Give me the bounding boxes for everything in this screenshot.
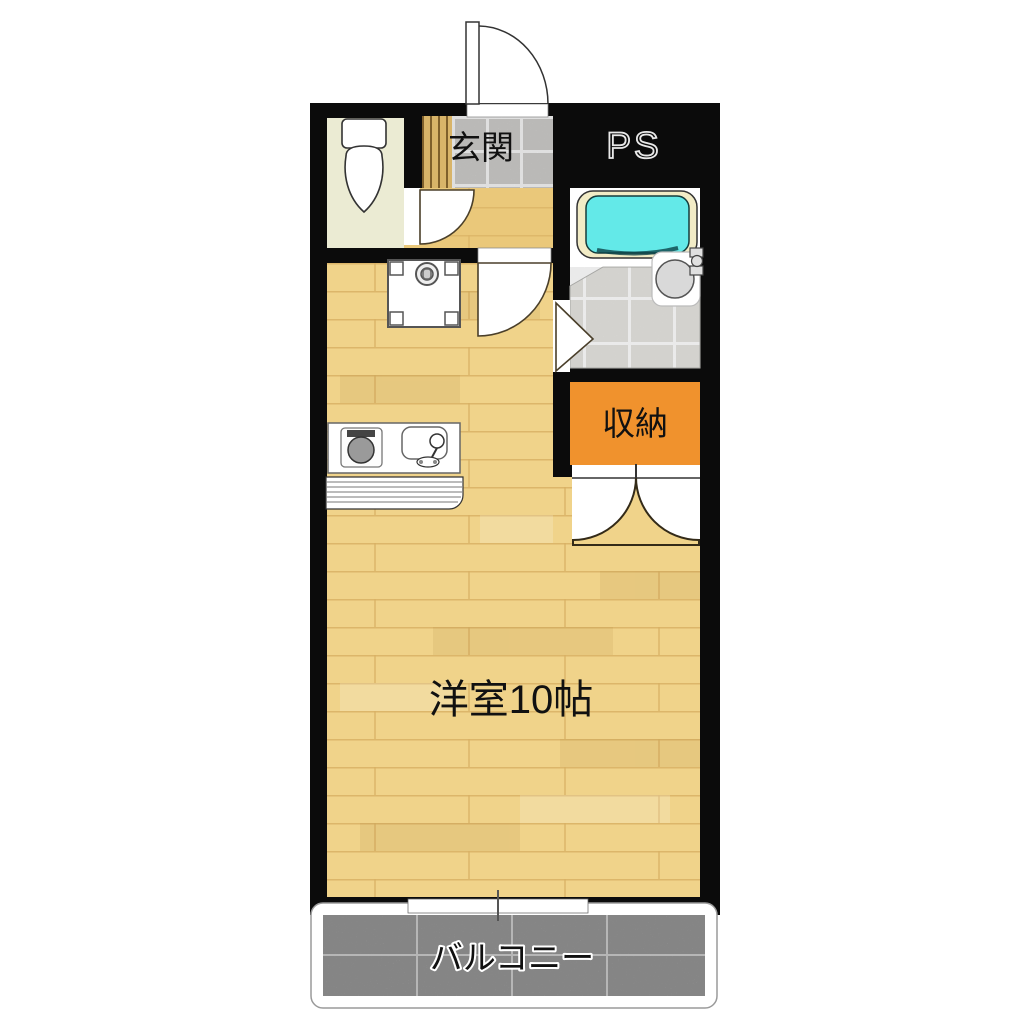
balcony-label: バルコニー: [430, 939, 594, 976]
toilet-door-opening: [404, 188, 420, 245]
entrance-door: [466, 22, 548, 117]
hall-door-opening: [478, 248, 551, 263]
toilet-room: [327, 118, 404, 248]
stove-icon: [341, 428, 382, 467]
storage-double-doors: [572, 464, 700, 545]
entrance-label: 玄関: [448, 129, 514, 166]
bathroom: [553, 188, 703, 372]
floor-plan-page: バルコニー 玄関 PS: [0, 0, 1024, 1024]
entrance-door-leaf: [466, 22, 479, 104]
main-room-label: 洋室10帖: [429, 678, 594, 722]
bath-faucet-icon: [690, 248, 703, 275]
entrance-door-arc: [479, 26, 548, 104]
floor-plan: バルコニー 玄関 PS: [0, 0, 1024, 1024]
balcony: バルコニー: [311, 903, 717, 1008]
washing-machine-pan-icon: [388, 260, 460, 327]
counter-front-icon: [326, 477, 463, 509]
entrance-door-opening: [467, 104, 548, 117]
ps-label: PS: [606, 125, 661, 166]
bathtub-icon: [577, 191, 697, 258]
storage-label: 収納: [602, 405, 668, 442]
storage-room: 収納: [570, 382, 700, 545]
kitchen-counter: [326, 423, 463, 509]
